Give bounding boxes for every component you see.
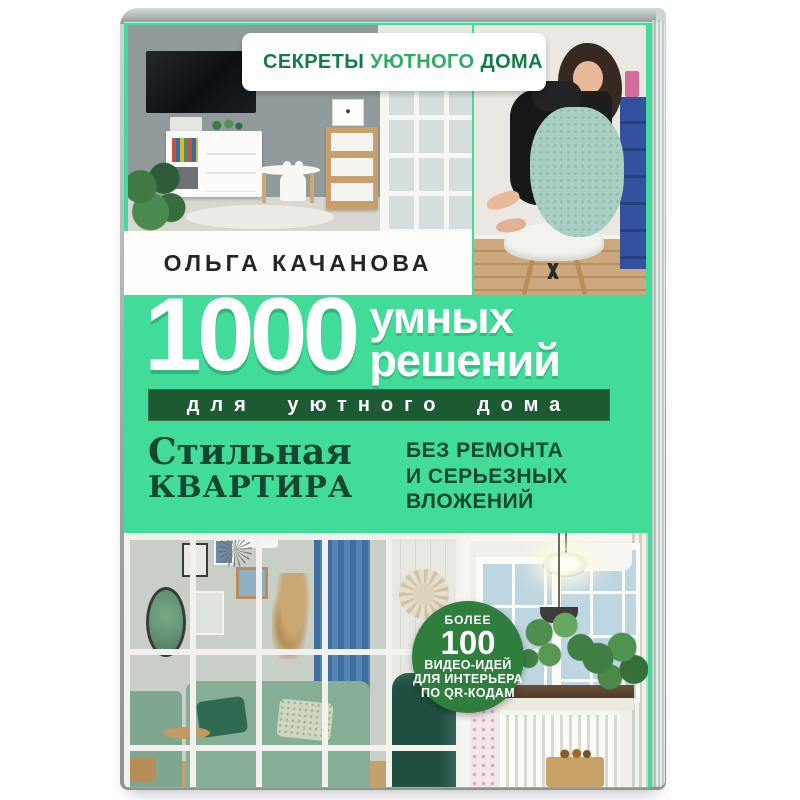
badge-line: ДЛЯ ИНТЕРЬЕРА	[413, 672, 523, 686]
title-word-line: решений	[369, 340, 560, 383]
plant-hanger-cord	[558, 533, 560, 609]
publisher-series-badge: СЕКРЕТЫ УЮТНОГО ДОМА	[242, 33, 546, 91]
book-row	[172, 138, 198, 162]
ceiling	[462, 533, 648, 541]
wooden-storage-unit	[326, 127, 378, 209]
mint-cardigan	[530, 107, 624, 237]
series-title: СЕКРЕТЫ УЮТНОГО ДОМА	[263, 51, 543, 74]
subtitle-right-line: БЕЗ РЕМОНТА	[406, 438, 626, 464]
wall-poster	[332, 99, 364, 126]
photo-living-room	[124, 533, 648, 787]
french-door	[380, 77, 472, 231]
subtitle-serif-line: Стильная	[148, 433, 353, 472]
chair-wire-base	[522, 263, 584, 279]
pink-object	[625, 71, 639, 97]
title-band: для уютного дома	[148, 389, 610, 421]
blue-drawer-unit	[620, 97, 646, 269]
drawer-fronts	[206, 136, 256, 192]
wooden-stool	[546, 757, 604, 787]
monstera-plant	[574, 625, 648, 699]
subtitle-right-line: И СЕРЬЕЗНЫХ	[406, 464, 626, 490]
title-number: 1000	[144, 293, 355, 383]
title-block: 1000 умных решений	[144, 293, 560, 383]
series-word: СЕКРЕТЫ	[263, 51, 364, 73]
book: СЕКРЕТЫ УЮТНОГО ДОМА ОЛЬГА КАЧАНОВА 1000…	[120, 8, 666, 790]
title-words: умных решений	[369, 297, 560, 383]
mirror-panel-wall	[124, 533, 386, 787]
wall-tv	[146, 51, 256, 113]
subtitle-serif: Стильная КВАРТИРА	[148, 433, 353, 515]
storage-box	[170, 117, 202, 131]
series-word: УЮТНОГО	[370, 51, 474, 73]
title-band-text: для уютного дома	[187, 394, 572, 417]
small-plants	[210, 117, 244, 131]
subtitle-row: Стильная КВАРТИРА БЕЗ РЕМОНТА И СЕРЬЕЗНЫ…	[148, 433, 626, 515]
author-band: ОЛЬГА КАЧАНОВА	[124, 231, 472, 295]
bare-foot	[485, 188, 522, 213]
subtitle-serif-line: КВАРТИРА	[148, 472, 353, 504]
book-front-cover: СЕКРЕТЫ УЮТНОГО ДОМА ОЛЬГА КАЧАНОВА 1000…	[124, 22, 652, 788]
video-ideas-badge: БОЛЕЕ 100 ВИДЕО-ИДЕЙ ДЛЯ ИНТЕРЬЕРА ПО QR…	[412, 601, 524, 713]
subtitle-right: БЕЗ РЕМОНТА И СЕРЬЕЗНЫХ ВЛОЖЕНИЙ	[406, 438, 626, 515]
white-rug	[186, 205, 334, 229]
series-word: ДОМА	[480, 51, 543, 73]
title-word-line: умных	[369, 297, 560, 340]
table-leg	[262, 173, 266, 203]
book-product-photo: СЕКРЕТЫ УЮТНОГО ДОМА ОЛЬГА КАЧАНОВА 1000…	[0, 0, 800, 800]
book-page-edge	[652, 20, 665, 787]
badge-line: ВИДЕО-ИДЕЙ	[424, 658, 511, 672]
badge-line: 100	[440, 627, 495, 658]
door-mullion	[386, 745, 462, 751]
pendant-lamp	[542, 551, 588, 577]
pears	[558, 748, 592, 758]
table-leg	[310, 173, 314, 203]
storage-bins	[331, 133, 373, 205]
badge-line: ПО QR-КОДАМ	[421, 686, 515, 700]
author-name: ОЛЬГА КАЧАНОВА	[164, 250, 433, 277]
subtitle-right-line: ВЛОЖЕНИЙ	[406, 489, 626, 515]
mirror-frame-grid	[124, 533, 386, 787]
bunny-chair	[280, 173, 306, 201]
